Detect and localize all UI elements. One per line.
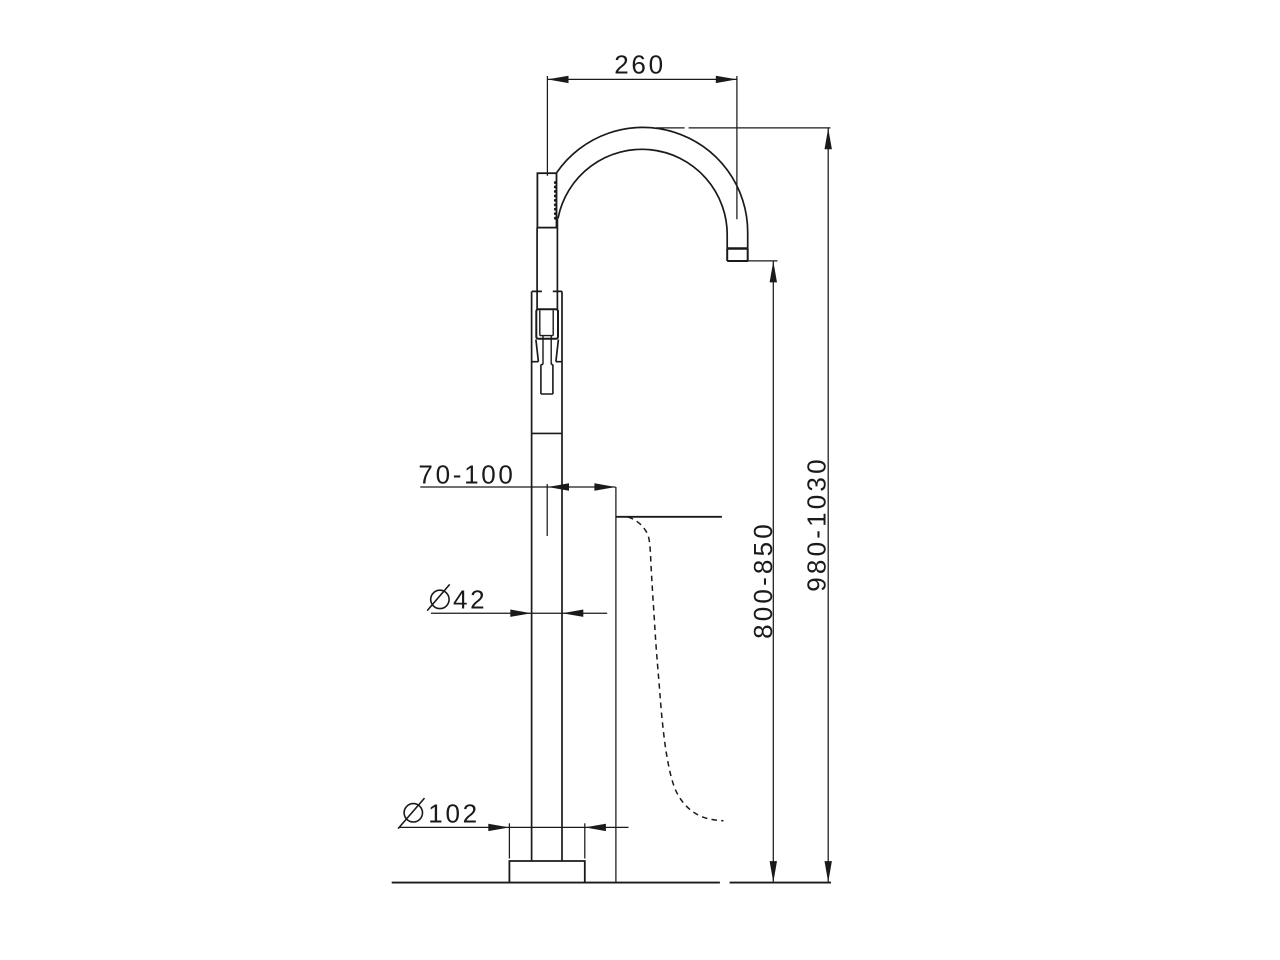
svg-text:70-100: 70-100 — [418, 460, 515, 490]
svg-text:42: 42 — [453, 585, 487, 615]
svg-text:800-850: 800-850 — [748, 521, 778, 639]
svg-text:980-1030: 980-1030 — [801, 456, 831, 591]
svg-text:102: 102 — [428, 798, 479, 828]
svg-text:260: 260 — [614, 50, 665, 80]
